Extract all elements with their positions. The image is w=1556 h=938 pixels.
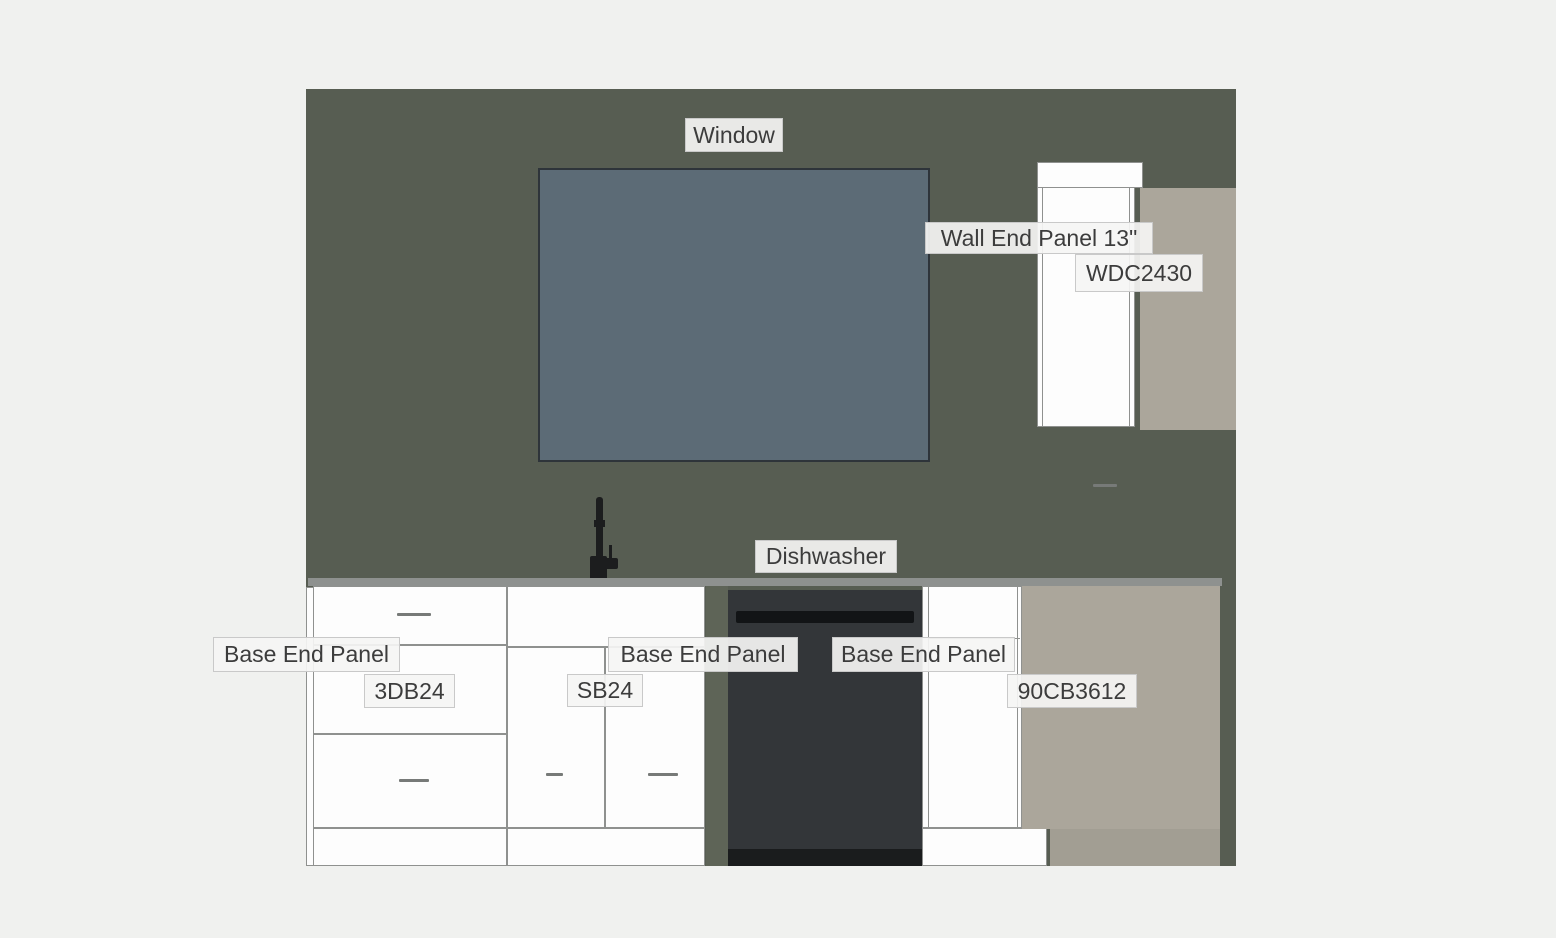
- door-handle: [1093, 484, 1117, 487]
- label-text: Base End Panel: [841, 641, 1006, 668]
- drawer-line: [314, 733, 506, 735]
- label-text: Dishwasher: [766, 543, 886, 570]
- label-base-end-panel-right[interactable]: Base End Panel: [832, 637, 1015, 672]
- wall-cabinet-top-rail: [1037, 162, 1143, 188]
- dishwasher-control-band: [736, 611, 914, 623]
- toe-kick: [507, 828, 705, 866]
- wall-gap-strip: [706, 586, 728, 866]
- dishwasher-object[interactable]: [728, 590, 922, 866]
- faucet-sprayer-stem: [609, 545, 612, 559]
- drawer-handle: [399, 779, 429, 782]
- label-90cb3612[interactable]: 90CB3612: [1007, 674, 1137, 708]
- label-base-end-panel-mid[interactable]: Base End Panel: [608, 637, 798, 672]
- faucet-sprayer: [605, 558, 618, 569]
- label-text: WDC2430: [1086, 260, 1192, 287]
- window-object[interactable]: [538, 168, 930, 462]
- door-handle: [546, 773, 563, 776]
- label-window[interactable]: Window: [685, 118, 783, 152]
- dishwasher-kick-band: [728, 849, 922, 866]
- label-text: Base End Panel: [621, 641, 786, 668]
- toe-kick: [313, 828, 507, 866]
- faucet-joint: [594, 520, 605, 527]
- cabinet-stile-line: [928, 587, 929, 827]
- label-base-end-panel-left[interactable]: Base End Panel: [213, 637, 400, 672]
- toe-kick: [922, 828, 1047, 866]
- label-wdc2430[interactable]: WDC2430: [1075, 254, 1203, 292]
- countertop[interactable]: [308, 578, 1222, 586]
- wall-end-panel-object[interactable]: [1140, 188, 1236, 430]
- label-text: 90CB3612: [1018, 678, 1127, 705]
- corner-cabinet-toe: [1050, 829, 1220, 866]
- label-text: 3DB24: [374, 678, 444, 705]
- label-text: Wall End Panel 13": [941, 225, 1138, 252]
- app-background: { "labels": { "window": "Window", "wall_…: [0, 0, 1556, 938]
- label-text: Base End Panel: [224, 641, 389, 668]
- label-3db24[interactable]: 3DB24: [364, 674, 455, 708]
- sink-base-sb24[interactable]: [507, 586, 705, 828]
- design-canvas[interactable]: Window Wall End Panel 13" WDC2430 Dishwa…: [306, 89, 1236, 866]
- drawer-handle: [397, 613, 431, 616]
- label-dishwasher[interactable]: Dishwasher: [755, 540, 897, 573]
- label-sb24[interactable]: SB24: [567, 674, 643, 707]
- label-wall-end-panel[interactable]: Wall End Panel 13": [925, 222, 1153, 254]
- label-text: Window: [693, 122, 775, 149]
- door-handle: [648, 773, 678, 776]
- label-text: SB24: [577, 677, 633, 704]
